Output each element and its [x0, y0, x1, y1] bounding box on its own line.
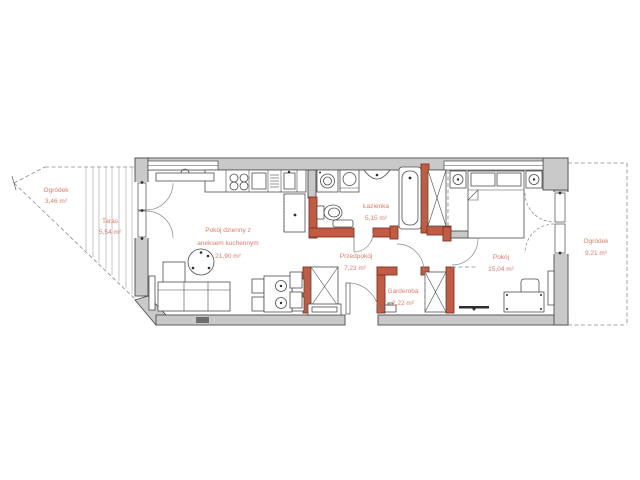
- highlighted-wall: [309, 228, 354, 237]
- floor-plan-page: Ogródek 3,46 m² Taras 5,54 m² Pokój dzie…: [0, 0, 640, 480]
- bedroom-label: Pokój: [493, 254, 509, 261]
- terrace-door: [134, 181, 173, 240]
- toilet-icon: [317, 205, 342, 220]
- garden-door: [525, 192, 569, 255]
- closet-label: Garderoba: [387, 288, 418, 295]
- coffee-table: [188, 249, 214, 275]
- fridge-icon: [284, 194, 305, 232]
- built-in-wardrobe: [428, 170, 448, 226]
- closet-area: 2,22 m²: [392, 300, 415, 307]
- nightstand-left: [450, 171, 466, 188]
- bath-mat: [333, 220, 353, 227]
- bedroom-radiator-icon: [548, 271, 554, 305]
- floor-plan: Ogródek 3,46 m² Taras 5,54 m² Pokój dzie…: [0, 0, 640, 480]
- living-room-area: 21,90 m²: [215, 253, 241, 260]
- garden-left-label: Ogródek: [44, 187, 70, 194]
- washing-machine-icon: [317, 170, 338, 192]
- living-radiator-icon: [149, 276, 155, 310]
- closet-wardrobe: [425, 272, 446, 312]
- bathtub-icon: [399, 167, 421, 229]
- hall-wardrobe: [308, 267, 341, 315]
- living-room-label-line1: Pokój dzienny z: [205, 227, 251, 234]
- garden-right-area: 9,21 m²: [585, 250, 608, 257]
- living-room-window: [148, 161, 218, 170]
- vanity-sink-icon: [340, 170, 359, 192]
- garden-right-label: Ogródek: [584, 238, 610, 245]
- bathroom-area: 5,15 m²: [365, 215, 388, 222]
- highlighted-wall: [377, 267, 397, 275]
- hall-label: Przedpokój: [340, 253, 373, 260]
- living-room-label-line2: aneksem kuchennym: [197, 240, 258, 247]
- entrance-door: [346, 283, 379, 314]
- wall-sink-icon: [364, 170, 390, 179]
- desk: [504, 279, 544, 312]
- hall-area: 7,23 m²: [344, 265, 367, 272]
- nightstand-right: [526, 171, 542, 188]
- wall-vent: [196, 317, 209, 323]
- highlighted-wall: [443, 227, 451, 241]
- closet-door: [397, 244, 424, 271]
- terrace-area: 5,54 m²: [99, 229, 122, 236]
- bedroom-area: 15,04 m²: [488, 266, 514, 273]
- terrace-label: Taras: [102, 218, 119, 225]
- highlighted-wall: [390, 226, 398, 239]
- garden-left-area: 3,46 m²: [45, 198, 68, 205]
- bathroom-door: [354, 233, 373, 252]
- bedroom-door: [452, 239, 478, 267]
- bed: [468, 171, 524, 238]
- bathroom-label: Łazienka: [363, 203, 389, 210]
- tv-icon: [459, 306, 489, 311]
- bedroom-window: [444, 161, 543, 170]
- highlighted-wall: [446, 267, 454, 313]
